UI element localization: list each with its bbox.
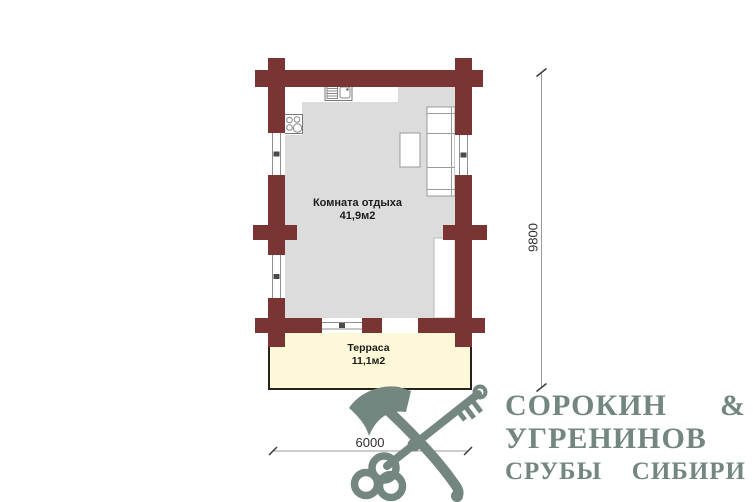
- terrace-name: Терраса: [287, 342, 450, 355]
- window-tick: [339, 323, 345, 328]
- sofa-body: [427, 107, 455, 196]
- crossed-axe-and-key-icon: [335, 380, 507, 502]
- axe-handle-butt-icon: [451, 490, 463, 502]
- window-left-upper: [268, 133, 285, 175]
- logo-name-line1: СОРОКИН &: [505, 389, 746, 422]
- terrace-label: Терраса 11,1м2: [287, 342, 450, 368]
- window-tick: [274, 152, 280, 157]
- window-right: [455, 135, 472, 175]
- sofa: [427, 107, 455, 196]
- window-bottom: [322, 318, 362, 333]
- dimension-depth-value: 9800: [526, 208, 541, 268]
- floorplan-page: Комната отдыха 41,9м2 Терраса 11,1м2 980…: [0, 0, 753, 502]
- log-joint-left: [253, 225, 297, 240]
- wall-left: [268, 58, 285, 347]
- terrace-area: 11,1м2: [287, 355, 450, 368]
- cabinet: [434, 238, 455, 318]
- key-bow-icon: [355, 456, 403, 498]
- log-joint-right: [443, 225, 487, 240]
- company-logo-text: СОРОКИН & УГРЕНИНОВ СРУБЫ СИБИРИ: [505, 389, 746, 487]
- window-left-lower: [268, 255, 285, 298]
- wall-bottom: [255, 318, 485, 333]
- wall-top: [255, 70, 483, 87]
- door-opening-to-terrace: [382, 318, 418, 333]
- window-tick: [274, 274, 280, 279]
- key-collar-icon: [408, 439, 421, 452]
- sink-drain-dot: [346, 88, 348, 90]
- stove: [285, 115, 303, 134]
- window-tick: [461, 153, 467, 158]
- logo-name-line2: УГРЕНИНОВ: [505, 422, 746, 455]
- room-area: 41,9м2: [287, 210, 428, 223]
- coffee-table: [400, 133, 420, 167]
- logo-tagline: СРУБЫ СИБИРИ: [505, 457, 746, 487]
- wall-right: [455, 58, 472, 347]
- room-label: Комната отдыха 41,9м2: [287, 197, 428, 223]
- room-name: Комната отдыха: [287, 197, 428, 210]
